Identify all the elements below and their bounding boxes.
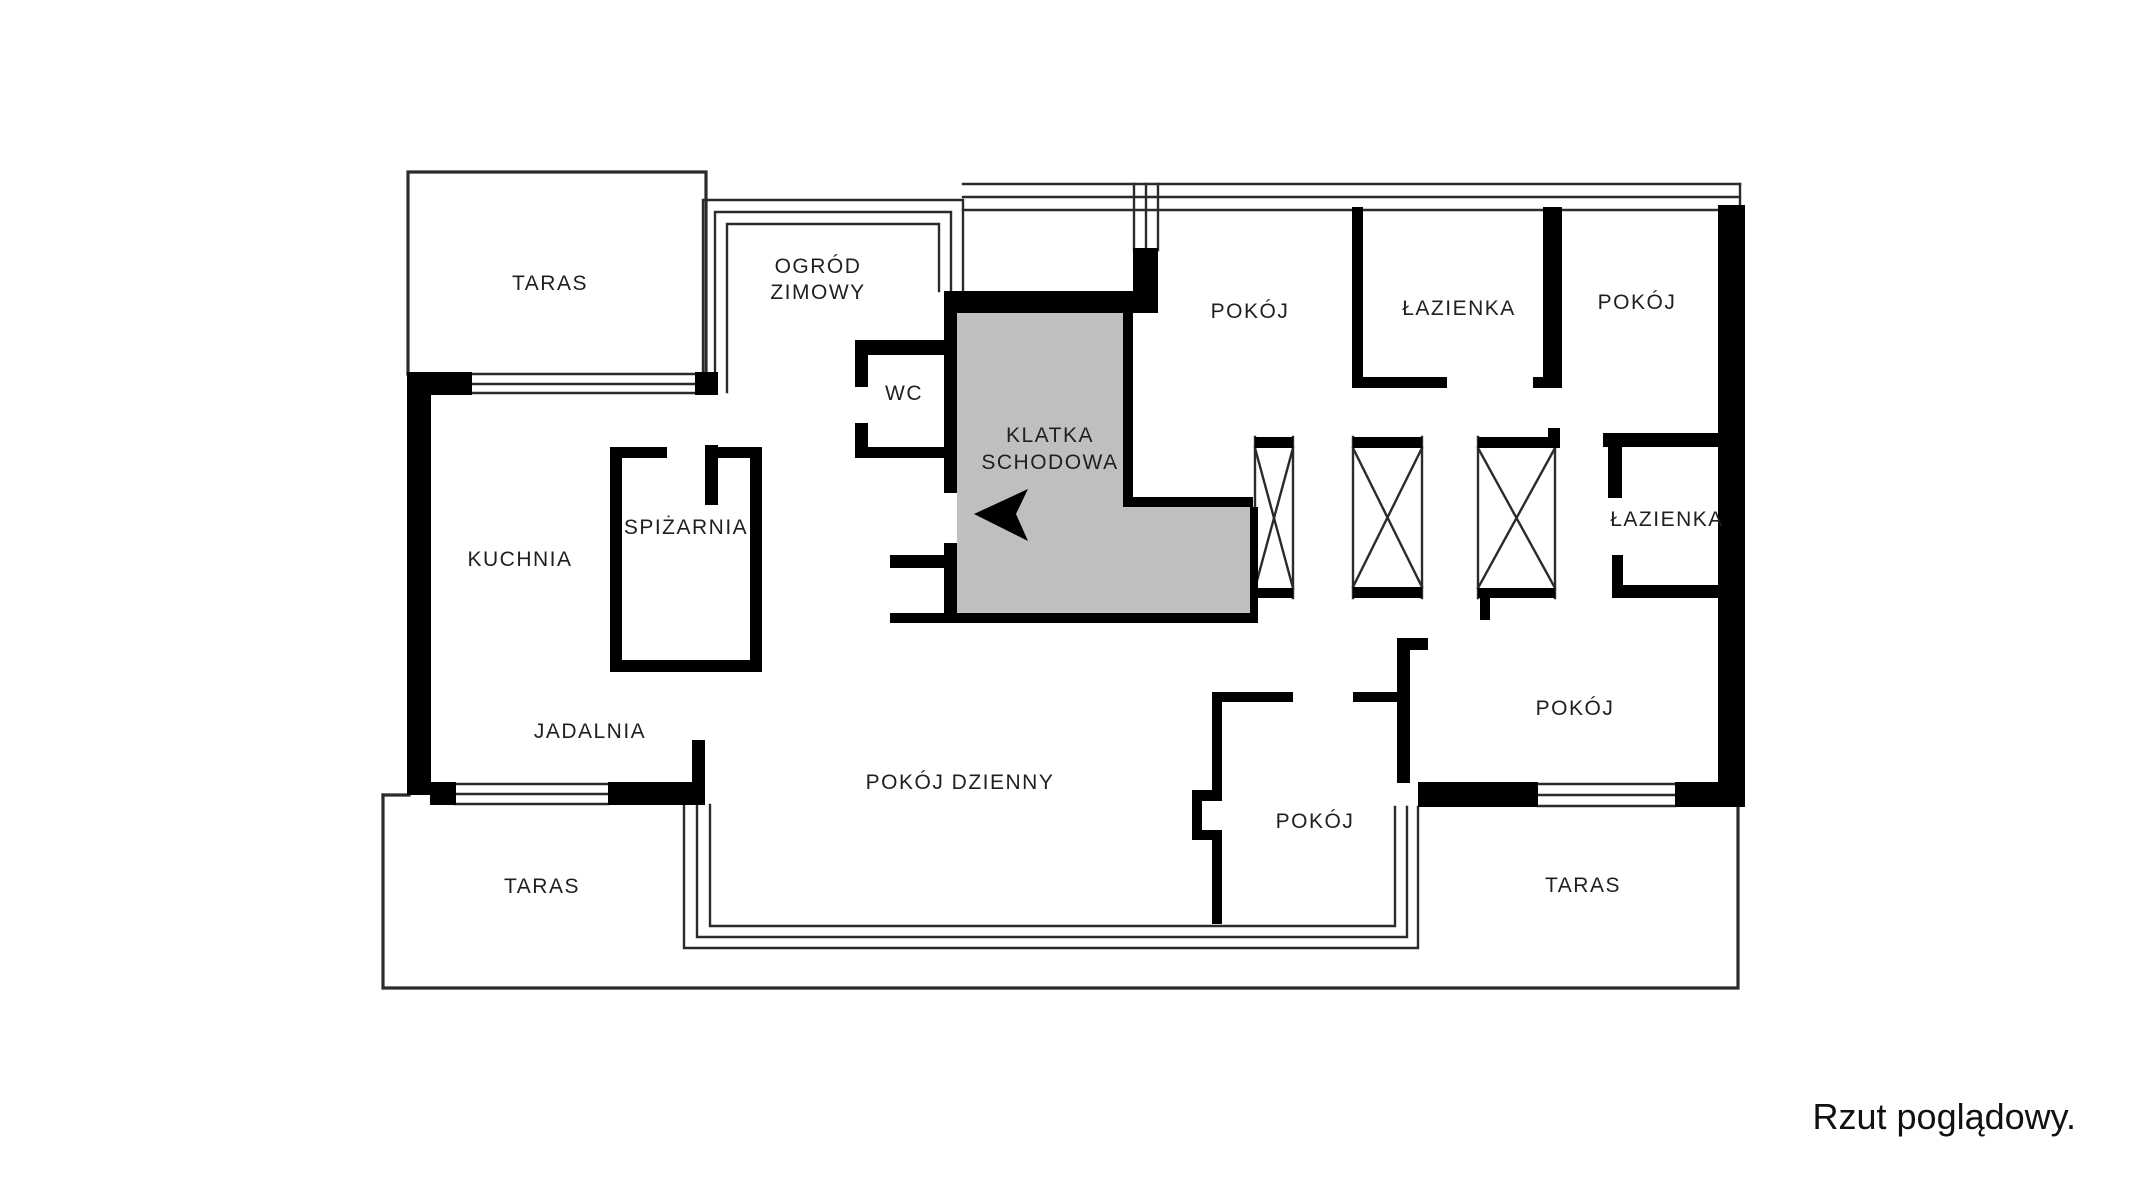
wall [1418, 782, 1538, 807]
wall [430, 782, 456, 805]
wall [855, 447, 944, 458]
wall [1212, 692, 1293, 702]
floorplan-page: TARASOGRÓDZIMOWYWCKLATKASCHODOWAPOKÓJŁAZ… [0, 0, 2134, 1200]
wall [610, 447, 622, 672]
wall [750, 447, 762, 672]
wall [1543, 207, 1562, 388]
wall [1212, 692, 1222, 800]
wall [695, 372, 718, 395]
wall [944, 543, 957, 613]
wall [1255, 437, 1293, 448]
room-label-taras-bottom-right: TARAS [1545, 874, 1621, 897]
room-label-pokoj-top: POKÓJ [1211, 300, 1290, 323]
wall [407, 372, 431, 795]
wall [1480, 598, 1490, 620]
wall [1603, 433, 1718, 447]
wall [1397, 638, 1428, 650]
room-label-spizarnia: SPIŻARNIA [624, 516, 748, 539]
room-label-lazienka-right: ŁAZIENKA [1610, 508, 1724, 531]
wall [1353, 587, 1422, 598]
room-label-taras-top-left: TARAS [512, 272, 588, 295]
room-label-pokoj-top-right: POKÓJ [1598, 291, 1677, 314]
room-label-pokoj-dzienny: POKÓJ DZIENNY [866, 771, 1055, 794]
wall [1612, 585, 1718, 598]
wall [1123, 497, 1253, 507]
room-label-pokoj-bottom: POKÓJ [1276, 810, 1355, 833]
wall [1212, 840, 1222, 924]
wall [1352, 207, 1363, 388]
room-label-taras-bottom-left: TARAS [504, 875, 580, 898]
wall [890, 555, 957, 568]
wall [855, 340, 944, 355]
room-label-wc: WC [885, 382, 923, 405]
wall [692, 740, 705, 785]
room-label-ogrod-zimowy: OGRÓDZIMOWY [770, 255, 865, 304]
room-label-lazienka-top: ŁAZIENKA [1402, 297, 1516, 320]
wall [1478, 437, 1552, 448]
wall [1363, 377, 1447, 388]
wall [944, 313, 957, 493]
wall [1397, 638, 1410, 783]
wall [944, 291, 1158, 313]
wall [1478, 588, 1555, 598]
wall [610, 660, 762, 672]
wall [1675, 782, 1745, 807]
oz-glass-inner [727, 224, 939, 392]
wall [1192, 801, 1202, 830]
footer-note: Rzut poglądowy. [1813, 1096, 2076, 1138]
room-label-pokoj-right: POKÓJ [1536, 697, 1615, 720]
wall [1353, 692, 1397, 702]
wall [610, 447, 667, 458]
wall [717, 447, 762, 458]
wall [1133, 248, 1158, 313]
wall [1192, 790, 1222, 801]
wall [855, 423, 868, 447]
wall [855, 355, 868, 387]
wall [890, 613, 1258, 623]
wall [1255, 588, 1293, 598]
wall [1192, 830, 1222, 840]
wall [1608, 447, 1622, 498]
wall [705, 445, 718, 505]
wall [1123, 313, 1133, 507]
wall [608, 782, 705, 805]
room-label-jadalnia: JADALNIA [534, 720, 646, 743]
floorplan-svg: TARASOGRÓDZIMOWYWCKLATKASCHODOWAPOKÓJŁAZ… [0, 0, 2134, 1200]
room-label-kuchnia: KUCHNIA [467, 548, 572, 571]
terrace-bottom-outline [383, 795, 1738, 988]
wall [1353, 437, 1422, 448]
wall [1548, 428, 1560, 448]
wall [1718, 205, 1745, 807]
